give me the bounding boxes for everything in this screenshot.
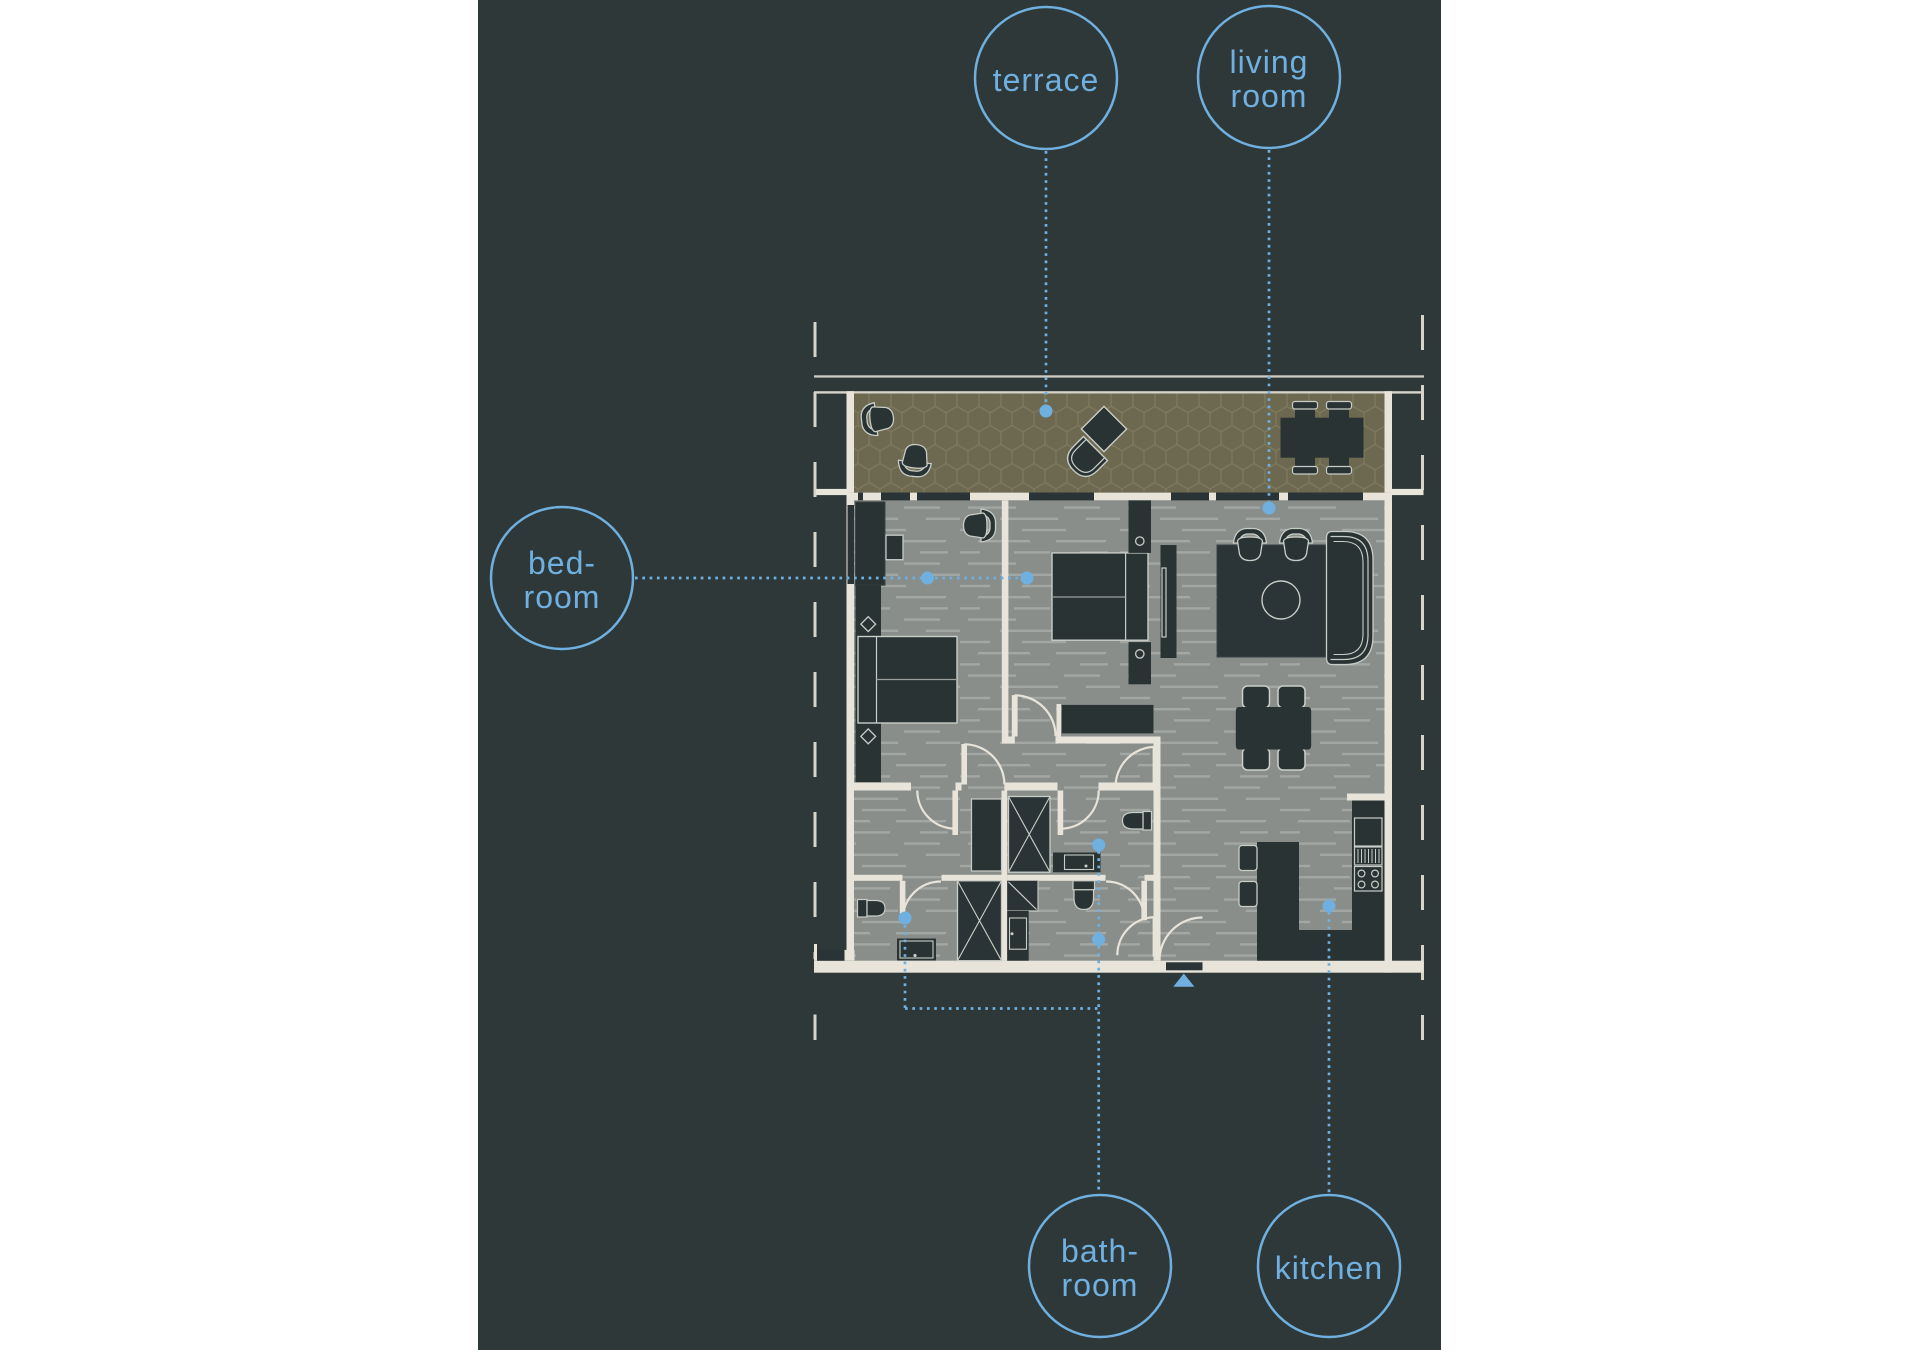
svg-text:livingroom: livingroom xyxy=(1230,44,1309,114)
svg-text:bath-room: bath-room xyxy=(1061,1233,1139,1303)
svg-text:bed-room: bed-room xyxy=(524,545,601,615)
svg-text:terrace: terrace xyxy=(993,62,1100,98)
svg-text:kitchen: kitchen xyxy=(1275,1250,1383,1286)
